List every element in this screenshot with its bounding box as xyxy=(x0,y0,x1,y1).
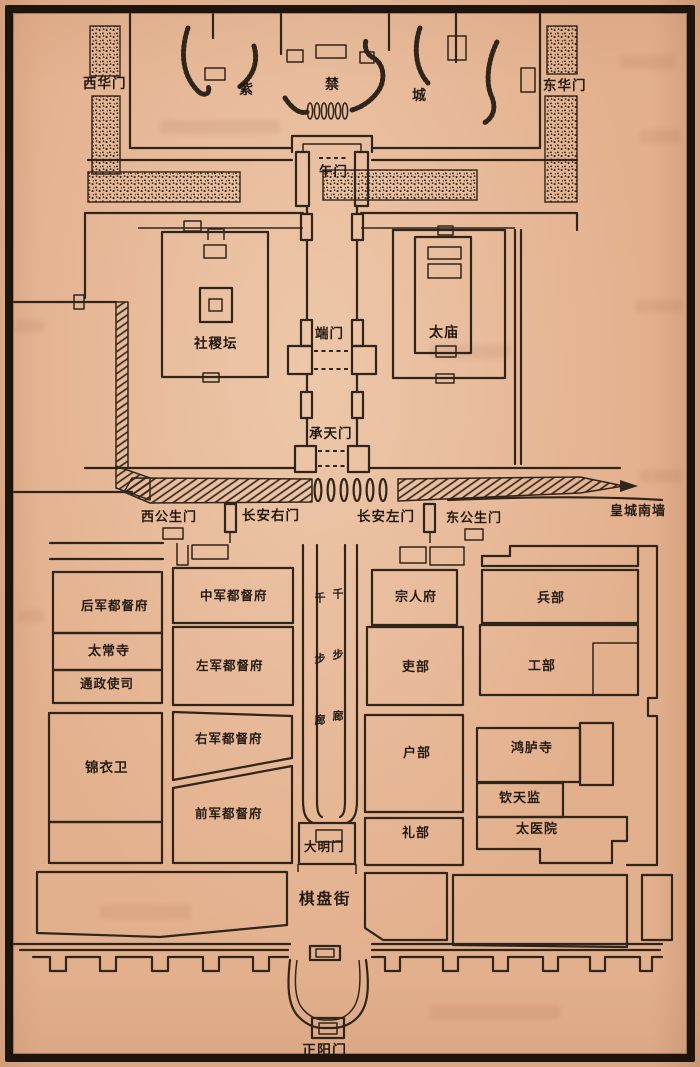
label-qianbulang-east: 千步廊 xyxy=(329,588,345,771)
label-libu-rites: 礼部 xyxy=(402,826,430,840)
label-damingmen: 大明门 xyxy=(304,841,345,855)
west-moat-channel xyxy=(116,302,128,468)
inner-golden-water-river xyxy=(183,28,497,123)
label-changanyoumen: 长安右门 xyxy=(242,509,300,524)
scanned-book-page: 西华门 东华门 紫 禁 城 午门 社稷坛 端门 太庙 承天门 西公生门 长安右门… xyxy=(0,0,700,1067)
label-forbidden-char-jin: 禁 xyxy=(325,78,340,93)
outer-river-bridges xyxy=(315,479,387,501)
label-duanmen: 端门 xyxy=(315,327,344,342)
label-zuojun-dudufu: 左军都督府 xyxy=(196,660,264,674)
label-qianjun-dudufu: 前军都督府 xyxy=(195,808,263,822)
label-zhongjun-dudufu: 中军都督府 xyxy=(200,590,268,604)
label-forbidden-char-zi: 紫 xyxy=(239,83,254,98)
label-xihuamen: 西华门 xyxy=(83,77,127,92)
inner-river-bridges xyxy=(307,103,347,119)
label-taichangsi: 太常寺 xyxy=(88,644,130,658)
label-bingbu: 兵部 xyxy=(537,591,565,605)
label-xigongshengmen: 西公生门 xyxy=(141,510,197,524)
zhengyangmen-barbican xyxy=(288,946,367,1038)
label-donggongshengmen: 东公生门 xyxy=(446,511,502,525)
label-libu-personnel: 吏部 xyxy=(402,660,430,674)
label-qianbulang-west: 千步廊 xyxy=(311,592,327,775)
shejitan-compound xyxy=(162,221,268,382)
label-taiyiyuan: 太医院 xyxy=(516,822,558,836)
label-honglusi: 鸿胪寺 xyxy=(511,741,553,755)
label-qintianjian: 钦天监 xyxy=(499,791,541,805)
label-huangcheng-nanqiang: 皇城南墙 xyxy=(610,504,666,518)
label-chengtianmen: 承天门 xyxy=(309,427,353,442)
label-youjun-dudufu: 右军都督府 xyxy=(195,733,263,747)
label-zhengyangmen: 正阳门 xyxy=(302,1044,347,1059)
label-donghuamen: 东华门 xyxy=(543,79,587,94)
label-gongbu: 工部 xyxy=(528,659,556,673)
label-jinyiwei: 锦衣卫 xyxy=(85,761,129,776)
label-tongzhengshisi: 通政使司 xyxy=(80,678,134,692)
imperial-city-south-wall-line xyxy=(448,497,662,500)
label-hubu: 户部 xyxy=(403,746,431,760)
outer-moat-and-bridges xyxy=(85,468,662,543)
label-taimiao: 太庙 xyxy=(429,326,459,341)
taimiao-compound xyxy=(393,226,505,383)
label-houjun-dudufu: 后军都督府 xyxy=(81,600,149,614)
label-shejitan: 社稷坛 xyxy=(194,337,238,352)
label-wumen: 午门 xyxy=(319,165,348,180)
outer-city-wall-crenellations xyxy=(33,957,662,971)
label-qipanjie: 棋盘街 xyxy=(299,891,352,908)
offices-right-outer-block xyxy=(477,546,657,865)
thousand-step-corridor xyxy=(299,545,357,864)
label-zongrenfu: 宗人府 xyxy=(395,590,437,604)
label-forbidden-char-cheng: 城 xyxy=(412,89,427,104)
label-changanzuomen: 长安左门 xyxy=(357,510,415,525)
